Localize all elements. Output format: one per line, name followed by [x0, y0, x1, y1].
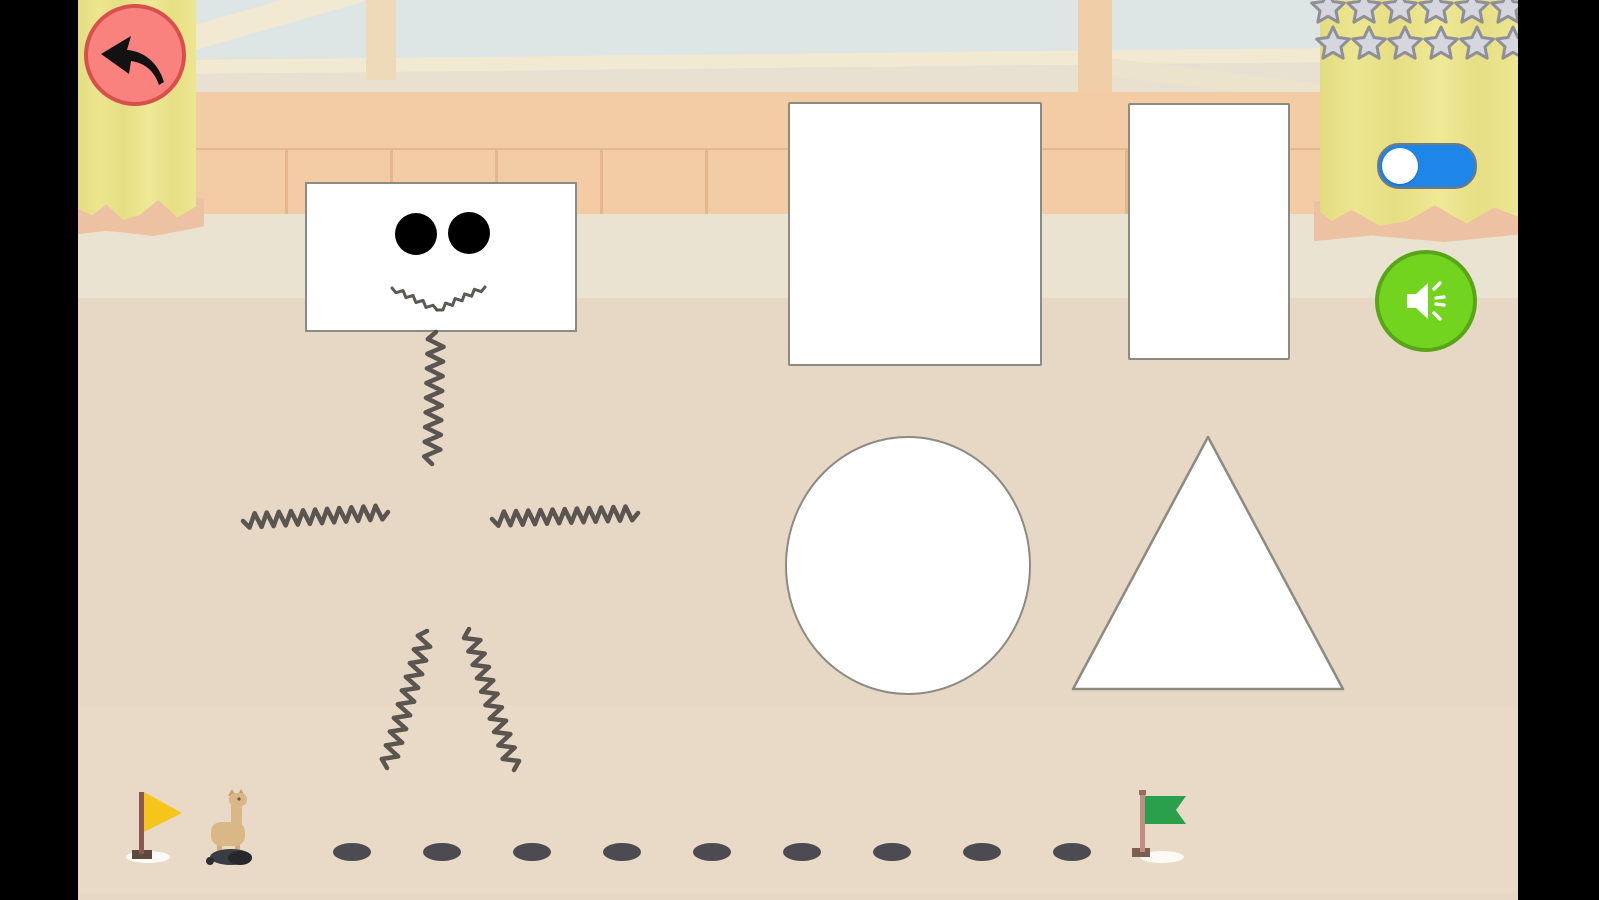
track-dot [693, 843, 731, 861]
track-dot [423, 843, 461, 861]
letterbox-left [0, 0, 78, 900]
track-dot [963, 843, 1001, 861]
shape-card-triangle[interactable] [1070, 434, 1346, 692]
back-arrow-icon [88, 8, 182, 102]
back-button[interactable] [84, 4, 186, 106]
track-dot [333, 843, 371, 861]
track-dot [783, 843, 821, 861]
stars-grid [1308, 0, 1518, 62]
window-post-right [1078, 0, 1112, 102]
figure-head [305, 182, 577, 332]
track-dot [1053, 843, 1091, 861]
shape-card-square[interactable] [788, 102, 1042, 366]
sound-button[interactable] [1375, 250, 1477, 352]
track-dot [513, 843, 551, 861]
floor-front-band [78, 705, 1518, 893]
llama-icon [205, 788, 255, 868]
speaker-icon [1401, 276, 1451, 326]
star-icon [1421, 24, 1461, 64]
star-icon [1385, 24, 1425, 64]
star-icon [1457, 24, 1497, 64]
star-icon [1493, 24, 1518, 64]
screen: { "hud": { "back_button": { "icon": "bac… [0, 0, 1599, 900]
window-post-left [366, 0, 396, 80]
game-area [78, 0, 1518, 900]
toggle-knob [1382, 148, 1418, 184]
star-row [1313, 24, 1518, 62]
start-flag-icon [118, 786, 198, 866]
finish-flag-icon [1118, 786, 1198, 866]
star-row [1308, 0, 1518, 26]
letterbox-right [1518, 0, 1599, 900]
shape-card-circle[interactable] [785, 436, 1031, 695]
star-icon [1313, 24, 1353, 64]
music-toggle[interactable] [1377, 143, 1477, 189]
shape-card-rectangle[interactable] [1128, 103, 1290, 360]
track-dot [603, 843, 641, 861]
star-icon [1349, 24, 1389, 64]
track-dot [873, 843, 911, 861]
